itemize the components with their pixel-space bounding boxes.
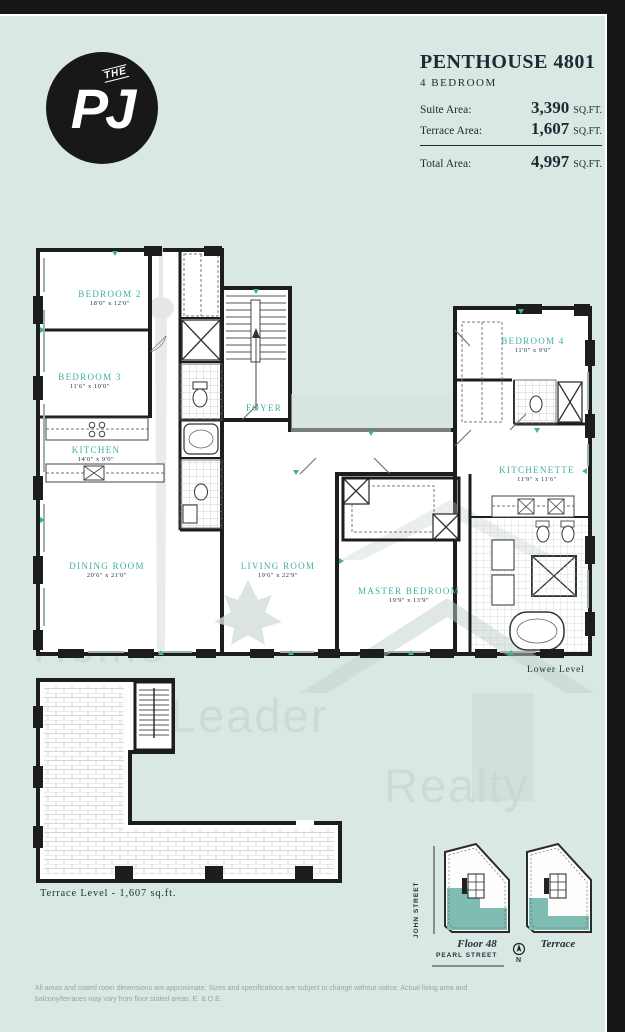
room-label-dining: DINING ROOM 20'6" x 21'0" [69, 561, 145, 579]
suite-area-unit: SQ.FT. [573, 105, 602, 116]
room-dims: 19'9" x 13'9" [358, 597, 460, 604]
page-subtitle: 4 BEDROOM [420, 77, 602, 89]
room-dims: 20'6" x 21'0" [69, 572, 145, 579]
room-name: KITCHENETTE [499, 465, 575, 475]
room-label-bedroom3: BEDROOM 3 11'6" x 10'0" [58, 372, 121, 390]
room-name: KITCHEN [72, 445, 121, 455]
bathtub-icon [510, 612, 564, 650]
area-table: Suite Area: 3,390 SQ.FT. Terrace Area: 1… [420, 98, 602, 173]
keyplan-terrace [527, 844, 591, 932]
suite-area-label: Suite Area: [420, 104, 471, 116]
room-label-bedroom2: BEDROOM 2 18'0" x 12'0" [78, 289, 141, 307]
terrace-level-label: Terrace Level - 1,607 sq.ft. [40, 888, 176, 899]
compass-icon [514, 944, 525, 955]
pj-logo: THE PJ [46, 52, 158, 164]
room-name: DINING ROOM [69, 561, 145, 571]
total-area-row: Total Area: 4,997 SQ.FT. [420, 152, 602, 173]
page-title: PENTHOUSE 4801 [420, 51, 602, 74]
room-name: BEDROOM 3 [58, 372, 121, 382]
logo-name: PJ [46, 78, 158, 140]
total-divider [420, 145, 602, 146]
room-dims: 11'9" x 11'6" [499, 476, 575, 483]
terrace-area-row: Terrace Area: 1,607 SQ.FT. [420, 119, 602, 140]
pearl-street-label: PEARL STREET [436, 952, 497, 959]
disclaimer-text: All areas and stated room dimensions are… [35, 984, 495, 1006]
terrace-door-gap [296, 820, 314, 826]
room-label-master: MASTER BEDROOM 19'9" x 13'9" [358, 586, 460, 604]
total-area-unit: SQ.FT. [573, 159, 602, 170]
penthouse-floorplan-page: { "logo": { "prefix": "THE", "name": "PJ… [0, 0, 625, 1030]
suite-area-value: 3,390 [471, 98, 569, 118]
room-label-kitchen: KITCHEN 14'0" x 9'0" [72, 445, 121, 463]
room-dims: 18'0" x 12'0" [78, 300, 141, 307]
john-street-label: JOHN STREET [413, 866, 420, 938]
room-name: LIVING ROOM [241, 561, 316, 571]
compass-north-label: N [516, 957, 521, 964]
keyplan-terrace-label: Terrace [541, 938, 575, 950]
lower-level-label: Lower Level [527, 665, 585, 675]
room-label-foyer: FOYER [246, 403, 282, 413]
terrace-area-unit: SQ.FT. [573, 126, 602, 137]
room-dims: 19'6" x 22'9" [241, 572, 316, 579]
total-area-label: Total Area: [420, 158, 471, 170]
header: PENTHOUSE 4801 4 BEDROOM Suite Area: 3,3… [420, 51, 602, 173]
room-name: FOYER [246, 403, 282, 413]
room-label-bedroom4: BEDROOM 4 11'0" x 9'0" [501, 336, 564, 354]
terrace-area-label: Terrace Area: [420, 125, 482, 137]
room-name: BEDROOM 4 [501, 336, 564, 346]
keyplan-floor48-label: Floor 48 [457, 938, 496, 950]
room-dims: 14'0" x 9'0" [72, 456, 121, 463]
room-label-living: LIVING ROOM 19'6" x 22'9" [241, 561, 316, 579]
room-name: MASTER BEDROOM [358, 586, 460, 596]
total-area-value: 4,997 [471, 152, 569, 172]
suite-area-row: Suite Area: 3,390 SQ.FT. [420, 98, 602, 119]
terrace-stairs-icon [135, 682, 173, 750]
terrace-floorplan [33, 680, 340, 881]
room-name: BEDROOM 2 [78, 289, 141, 299]
terrace-area-value: 1,607 [482, 119, 569, 139]
keyplan-floor48 [445, 844, 509, 932]
room-dims: 11'6" x 10'0" [58, 383, 121, 390]
room-label-kitchenette: KITCHENETTE 11'9" x 11'6" [499, 465, 575, 483]
room-dims: 11'0" x 9'0" [501, 347, 564, 354]
